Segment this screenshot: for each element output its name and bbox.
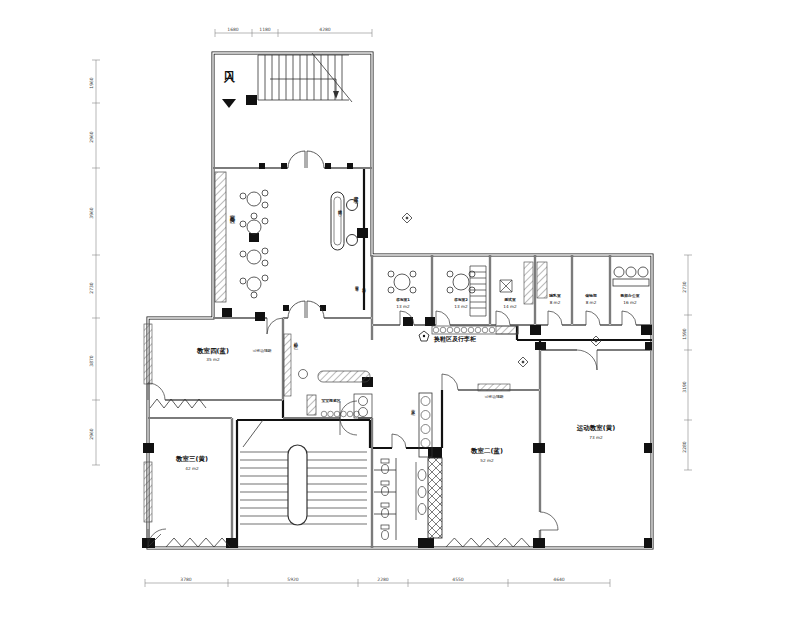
classroom2-label: 教室二(蓝) <box>470 447 503 455</box>
level-marker <box>299 370 308 379</box>
storage-room: 储物间 8 m2 <box>584 293 597 305</box>
classroom2-area: 52 m2 <box>480 458 494 463</box>
lobby-south-double-door <box>288 301 324 318</box>
hall-sinks <box>354 394 372 418</box>
dim-top-1: 1680 <box>227 27 239 32</box>
baby-reading-label: 宝宝阅览区 <box>322 398 341 403</box>
reception-desk-label: 接待吧台 <box>338 206 343 217</box>
storage-label: 储物间 <box>584 293 597 298</box>
classroom4-label: 教室四(蓝) <box>196 347 229 355</box>
classroom3-area: 42 m2 <box>185 466 199 471</box>
classroom3-label: 教室三(黄) <box>175 455 208 463</box>
tea-cabinet-label: 茶水柜 <box>410 406 416 416</box>
nursing-label: 哺乳室 <box>549 293 561 298</box>
stair-break <box>243 420 263 447</box>
teacher-office: 教师办公室 16 m2 <box>613 267 649 305</box>
waiting-tables <box>240 190 268 298</box>
waiting-bench <box>215 172 226 302</box>
bookshelf <box>470 266 486 316</box>
stair-direction-arrow <box>270 79 336 92</box>
consult2-area: 13 m2 <box>454 304 468 309</box>
test-room: 测试室 14 m2 <box>470 262 533 316</box>
stair-break-line <box>312 53 352 102</box>
entrance-arrow-icon <box>222 99 236 108</box>
entrance-hall: 入口 <box>222 53 352 168</box>
test-desk <box>500 280 512 292</box>
consult1-label: 咨询室1 <box>396 297 410 302</box>
dim-bottom-3: 2280 <box>377 577 389 582</box>
sports-label: 运动教室(黄) <box>576 424 615 432</box>
nursing-cabinet <box>537 262 547 298</box>
dim-left-6: 2960 <box>89 428 94 440</box>
reception-desk <box>331 192 358 250</box>
classroom4-door <box>267 318 283 334</box>
movable-partition-label-1: 可移动隔断 <box>253 348 272 353</box>
window-bench3 <box>144 462 152 522</box>
stall-walls <box>374 458 396 540</box>
dim-left-3: 3960 <box>89 207 94 219</box>
stair-arrow-head <box>333 91 339 99</box>
toilet-door <box>392 434 406 448</box>
floorplan-drawing: 1680 1180 4280 3780 5920 2280 4550 4640 … <box>0 0 800 618</box>
classroom4-area: 35 m2 <box>206 357 220 362</box>
classroom2-door <box>442 374 458 390</box>
toy-shelf-zigzag2 <box>446 538 530 547</box>
dimension-values: 1680 1180 4280 3780 5920 2280 4550 4640 … <box>89 27 687 582</box>
storage-area: 8 m2 <box>586 300 597 305</box>
baby-reading-area: 宝宝阅览区 <box>307 371 372 435</box>
dim-right-3: 3190 <box>682 381 687 393</box>
waiting-area-label: 家长等待区 <box>229 210 236 224</box>
dim-bottom-4: 4550 <box>452 577 464 582</box>
dim-right-2: 1590 <box>682 328 687 340</box>
stair-railing <box>288 445 307 525</box>
honor-wall-label: 荣誉墙 <box>354 282 359 292</box>
toy-shelf-zigzag3 <box>166 538 230 547</box>
toilet-fixtures <box>381 459 389 540</box>
room-sports: 运动教室(黄) 73 m2 <box>540 424 615 530</box>
consult-room-1: 咨询室1 13 m2 <box>388 271 416 309</box>
duct-shaft <box>428 458 442 538</box>
test-cabinet <box>524 262 533 304</box>
wash-basins <box>416 462 426 520</box>
dim-right-4: 2280 <box>682 441 687 453</box>
classroom4-door-sw <box>148 383 165 400</box>
entrance-double-door <box>288 151 324 168</box>
nursing-room: 哺乳室 8 m2 <box>537 262 561 305</box>
consult1-area: 13 m2 <box>396 304 410 309</box>
test-room-area: 14 m2 <box>503 304 517 309</box>
corridor-lockers-label: 换鞋区及行李柜 <box>433 335 476 343</box>
room-classroom2: 可移动隔断 教室二(蓝) 52 m2 <box>442 374 530 547</box>
sofa <box>318 371 370 382</box>
classroom3-door <box>148 529 166 547</box>
shoe-lockers <box>284 334 291 396</box>
movable-partition-label-2: 可移动隔断 <box>485 394 504 399</box>
dim-bottom-1: 3780 <box>180 577 192 582</box>
lobby: 家长等待区 接待吧台 背景墙 荣誉墙 签到台 <box>215 172 367 318</box>
room-classroom3: 教室三(黄) 42 m2 <box>144 455 230 547</box>
dim-bottom-2: 5920 <box>287 577 299 582</box>
office-area: 16 m2 <box>623 300 637 305</box>
nursing-area: 8 m2 <box>550 300 561 305</box>
sports-area: 73 m2 <box>589 435 603 440</box>
sports-door <box>540 512 558 530</box>
dimension-lines <box>92 29 692 587</box>
dim-top-3: 4280 <box>319 27 331 32</box>
test-room-label: 测试室 <box>503 297 516 302</box>
partition2 <box>478 384 510 391</box>
dim-top-2: 1180 <box>259 27 271 32</box>
consult2-label: 咨询室2 <box>454 297 468 302</box>
dim-right-1: 2730 <box>682 281 687 293</box>
floorplan-page: 1680 1180 4280 3780 5920 2280 4550 4640 … <box>0 0 800 618</box>
dim-bottom-5: 4640 <box>553 577 565 582</box>
window-bench <box>144 324 152 384</box>
office-label: 教师办公室 <box>620 293 640 298</box>
pillar <box>307 395 316 415</box>
dim-left-4: 2730 <box>89 282 94 294</box>
central-staircase <box>240 420 367 525</box>
shoe-change-label: 换鞋区 <box>293 338 299 350</box>
corridor-lockers: 换鞋区及行李柜 <box>419 326 518 343</box>
structural-columns <box>142 95 652 548</box>
dim-left-1: 1960 <box>89 77 94 89</box>
dim-left-2: 2960 <box>89 131 94 143</box>
entrance-label: 入口 <box>223 62 237 84</box>
dim-left-5: 3870 <box>89 355 94 367</box>
